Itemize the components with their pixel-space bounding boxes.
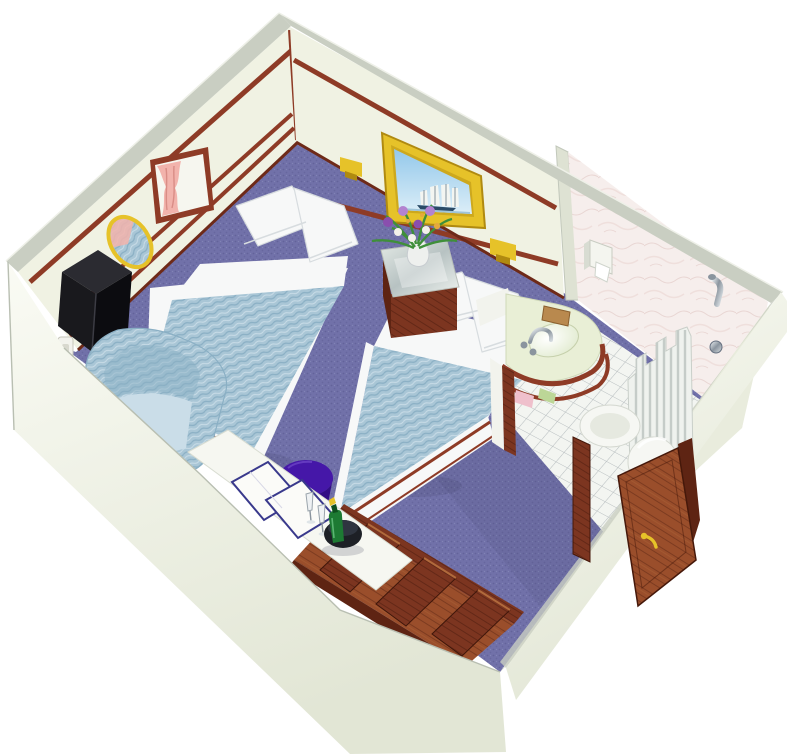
faucet-knob	[521, 342, 528, 349]
faucet-knob	[530, 349, 537, 356]
bathroom-door-jamb	[573, 437, 590, 562]
cabin-3d-cutaway	[0, 0, 787, 754]
cabinet-side	[490, 358, 504, 450]
shower-mixer-knob	[710, 341, 722, 353]
toilet-seat	[590, 413, 630, 439]
support-post	[502, 366, 516, 456]
